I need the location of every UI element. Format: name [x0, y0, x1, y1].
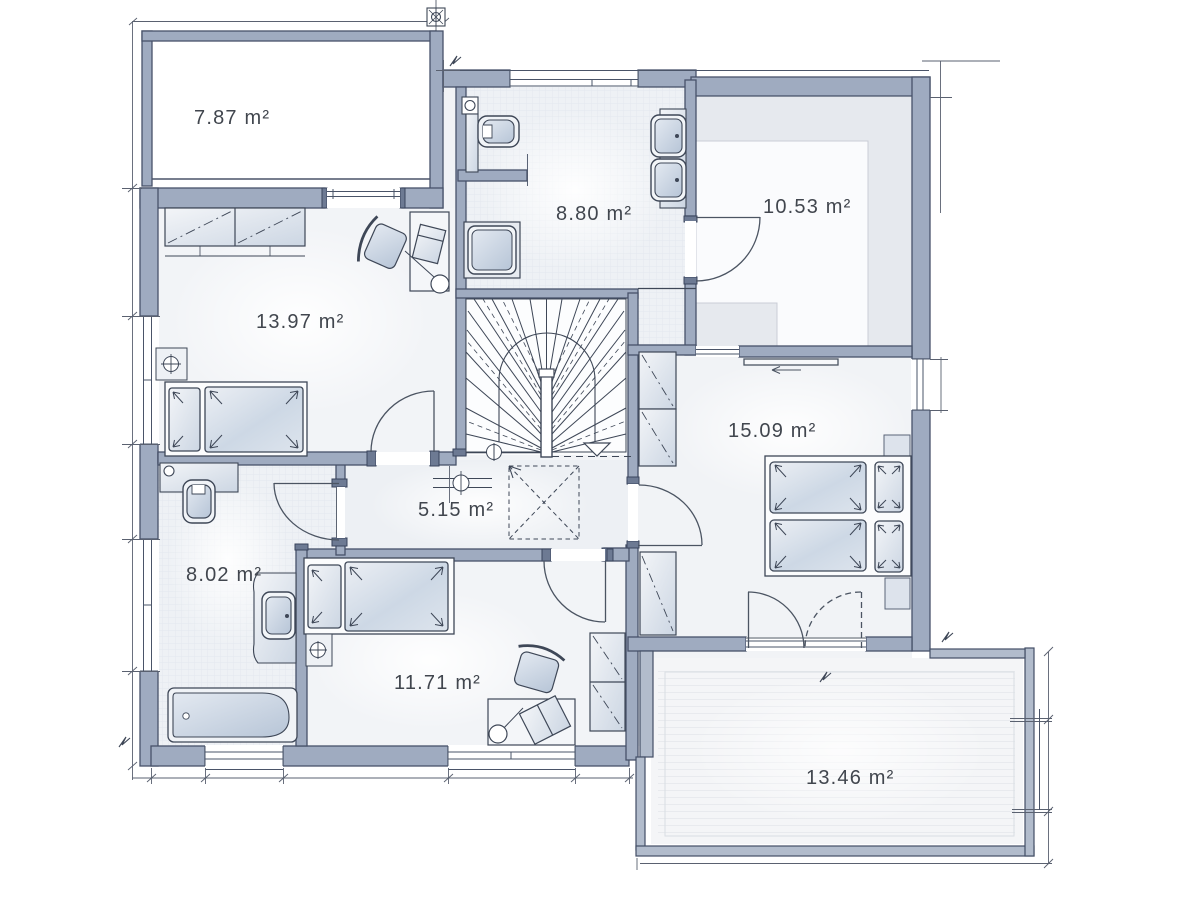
- svg-text:13.97 m²: 13.97 m²: [256, 311, 345, 333]
- svg-text:7.87 m²: 7.87 m²: [194, 107, 270, 129]
- svg-text:8.80 m²: 8.80 m²: [556, 203, 632, 225]
- svg-text:10.53 m²: 10.53 m²: [763, 196, 852, 218]
- svg-text:8.02 m²: 8.02 m²: [186, 564, 262, 586]
- svg-text:5.15 m²: 5.15 m²: [418, 499, 494, 521]
- svg-text:13.46 m²: 13.46 m²: [806, 767, 895, 789]
- svg-text:15.09 m²: 15.09 m²: [728, 420, 817, 442]
- svg-text:11.71 m²: 11.71 m²: [394, 672, 481, 694]
